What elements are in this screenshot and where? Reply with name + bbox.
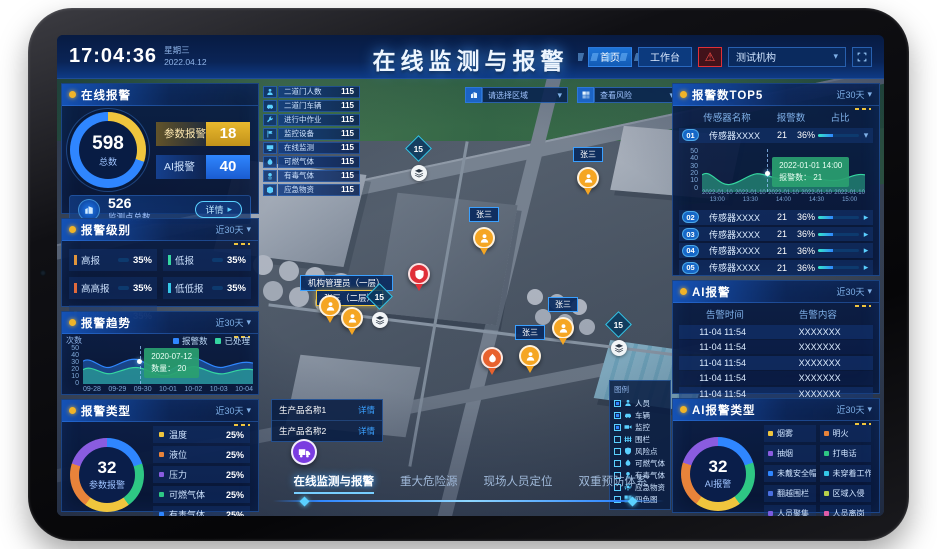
table-header: 告警时间 告警内容 — [673, 303, 879, 323]
page-title: 在线监测与报警 — [373, 42, 569, 76]
table-row[interactable]: 04 传感器XXXX 21 36% — [679, 243, 873, 258]
panel-ai-alarm: AI报警 近30天 告警时间 告警内容 11-04 11:54XXXXXXX — [672, 280, 880, 394]
layers-icon — [414, 168, 424, 178]
stat-online-monitoring[interactable]: 在线监测115 — [263, 141, 360, 154]
hover-point — [137, 359, 142, 364]
panel-title: AI报警类型 — [692, 402, 756, 418]
truck-icon — [298, 446, 311, 459]
range-select[interactable]: 近30天 — [215, 316, 251, 329]
dashboard-screen: 17:04:36 星期三 2022.04.12 在线监测与报警 首页 工作台 测… — [57, 35, 884, 516]
trend-chart: 次数 报警数 已处理 5040 3020 100 — [62, 334, 258, 394]
flame-icon — [487, 353, 498, 364]
tablet-camera — [40, 270, 46, 276]
level-item: 高报 35% — [69, 249, 157, 271]
level-item: 低低报 35% — [163, 277, 251, 299]
time: 17:04:36 — [69, 45, 157, 68]
panel-ai-alarm-type: AI报警类型 近30天 32 AI报警 — [672, 398, 880, 513]
donut-value: 32 — [98, 458, 117, 478]
quadrant-icon — [582, 91, 590, 99]
chevron-down-icon — [833, 51, 838, 62]
stat-flammable-gas[interactable]: 可燃气体115 — [263, 155, 360, 168]
legend-item: 压力 25% — [153, 466, 250, 483]
person-icon — [583, 173, 594, 184]
layers-icon — [375, 315, 385, 325]
expand-row-icon[interactable] — [859, 262, 873, 273]
person-icon — [479, 233, 490, 244]
panel-title: 报警数TOP5 — [692, 87, 763, 103]
panel-bullet-icon — [69, 91, 76, 98]
layer-toggle-flammable[interactable]: 可燃气体 — [614, 457, 666, 469]
title-decoration — [578, 53, 638, 61]
bottom-nav: 在线监测与报警 重大危险源 现场人员定位 双重预防体系 — [294, 473, 648, 494]
collapse-row-icon[interactable] — [859, 130, 873, 141]
flame-icon — [266, 158, 274, 166]
chart-tooltip: 2022-01-01 14:00 报警数： 21 — [772, 157, 849, 187]
legend-item: 抽烟 — [764, 445, 816, 462]
chevron-down-icon — [246, 405, 251, 416]
layer-toggle-vehicle[interactable]: 车辆 — [614, 409, 666, 421]
chevron-down-icon — [867, 286, 872, 297]
layers-icon — [614, 343, 624, 353]
range-select[interactable]: 近30天 — [215, 404, 251, 417]
legend-item: 打电话 — [820, 445, 872, 462]
car-icon — [624, 411, 632, 419]
chevron-down-icon — [867, 404, 872, 415]
alarm-warning-icon[interactable] — [698, 47, 722, 67]
person-icon — [558, 323, 569, 334]
rank-badge: 05 — [682, 262, 699, 274]
gauge-label: 总数 — [99, 155, 117, 168]
chevron-down-icon — [557, 90, 562, 101]
shield-icon — [624, 447, 632, 455]
main-area: 二道门人数115 二道门车辆115 进行中作业115 监控设备115 在线监测1… — [57, 79, 884, 516]
camera-icon — [624, 423, 632, 431]
ai-alarm-stat: AI报警 40 — [156, 155, 250, 179]
legend-item: 明火 — [820, 425, 872, 442]
layers-marker[interactable] — [372, 312, 388, 328]
legend-item: 液位 25% — [153, 446, 250, 463]
weekday: 星期三 — [164, 45, 207, 56]
legend-item: 区域入侵 — [820, 485, 872, 502]
table-row[interactable]: 05 传感器XXXX 21 36% — [679, 260, 873, 275]
legend-item: 有毒气体 25% — [153, 506, 250, 516]
stat-gate-people[interactable]: 二道门人数115 — [263, 85, 360, 98]
sensor-trend-chart: 5040 3020 100 2022-01 — [681, 146, 871, 205]
table-row[interactable]: 03 传感器XXXX 21 36% — [679, 227, 873, 242]
workbench-button[interactable]: 工作台 — [638, 47, 692, 67]
fire-alarm-pin[interactable] — [481, 347, 503, 369]
layers-marker[interactable] — [611, 340, 627, 356]
stat-monitor-devices[interactable]: 监控设备115 — [263, 127, 360, 140]
chart-tooltip: 2020-07-12 数量： 20 — [144, 348, 199, 378]
alarm-type-donut: 32 参数报警 — [70, 438, 144, 512]
panel-bullet-icon — [680, 406, 687, 413]
layer-toggle-person[interactable]: 人员 — [614, 397, 666, 409]
checkbox[interactable] — [614, 400, 621, 407]
table-row[interactable]: 11-04 11:54XXXXXXX — [679, 340, 873, 354]
panel-title: 报警趋势 — [81, 315, 131, 331]
panel-alarm-level: 报警级别 近30天 高报 35% — [61, 218, 259, 307]
panel-bullet-icon — [69, 226, 76, 233]
area-select[interactable]: 请选择区域 — [482, 87, 568, 103]
tablet-frame: 17:04:36 星期三 2022.04.12 在线监测与报警 首页 工作台 测… — [28, 8, 909, 541]
risk-select[interactable]: 查看风险 — [594, 87, 680, 103]
tab-personnel-location[interactable]: 现场人员定位 — [484, 473, 553, 494]
legend-item: 烟雾 — [764, 425, 816, 442]
legend-item: 人员离岗 — [820, 505, 872, 516]
panel-title: 在线报警 — [81, 87, 131, 103]
stat-active-jobs[interactable]: 进行中作业115 — [263, 113, 360, 126]
layer-toggle-risk[interactable]: 风险点 — [614, 445, 666, 457]
layers-marker[interactable] — [411, 165, 427, 181]
ai-alarm-value: 40 — [206, 155, 250, 179]
top-bar: 17:04:36 星期三 2022.04.12 在线监测与报警 首页 工作台 测… — [57, 35, 884, 79]
map-stat-list: 二道门人数115 二道门车辆115 进行中作业115 监控设备115 在线监测1… — [263, 85, 360, 196]
gauge-value: 598 — [92, 133, 124, 155]
table-row[interactable]: 01 传感器XXXX 21 36% — [679, 128, 873, 143]
chevron-down-icon — [246, 224, 251, 235]
layer-toggle-quadmap[interactable]: 四色图 — [614, 493, 666, 505]
area-select-group: 请选择区域 — [465, 87, 568, 103]
expand-row-icon[interactable] — [859, 212, 873, 223]
panel-title: 报警级别 — [81, 222, 131, 238]
range-select[interactable]: 近30天 — [836, 403, 872, 416]
car-icon — [266, 102, 274, 110]
panel-bullet-icon — [69, 407, 76, 414]
ai-type-donut: 32 AI报警 — [681, 437, 755, 511]
org-select[interactable]: 测试机构 — [728, 47, 846, 67]
table-row[interactable]: 02 传感器XXXX 21 36% — [679, 210, 873, 225]
x-axis-ticks: 2022-01-1013:00 2022-01-1013:30 2022-01-… — [702, 190, 865, 205]
product-row: 生产品名称2 详情 — [272, 420, 382, 441]
org-select-value: 测试机构 — [736, 49, 776, 64]
worker-pin[interactable]: 张三 — [519, 345, 541, 367]
legend-item: 温度 25% — [153, 426, 250, 443]
worker-pin[interactable]: 张三 — [577, 167, 599, 189]
shield-icon — [414, 269, 425, 280]
fullscreen-icon — [857, 52, 867, 62]
tab-online-monitoring[interactable]: 在线监测与报警 — [294, 473, 375, 494]
rank-badge: 04 — [682, 245, 699, 257]
donut-label: 参数报警 — [89, 478, 125, 491]
donut-value: 32 — [709, 457, 728, 477]
person-icon — [624, 399, 632, 407]
expand-row-icon[interactable] — [859, 245, 873, 256]
y-axis-ticks: 5040 3020 100 — [62, 345, 79, 384]
product-detail-link[interactable]: 详情 — [358, 425, 375, 437]
stat-gate-vehicles[interactable]: 二道门车辆115 — [263, 99, 360, 112]
level-item: 低报 35% — [163, 249, 251, 271]
right-column: 报警数TOP5 近30天 传感器名称 报警数 占比 01 传感器XXXX — [672, 83, 880, 513]
left-column: 在线报警 598 总数 参数报警 18 — [61, 83, 259, 512]
person-icon — [525, 351, 536, 362]
rank-badge: 02 — [682, 211, 699, 223]
stat-emergency-supplies[interactable]: 应急物资115 — [263, 183, 360, 196]
person-icon — [347, 313, 358, 324]
monitor-icon — [266, 144, 274, 152]
flame-icon — [624, 459, 632, 467]
total-alarm-gauge: 598 总数 — [70, 112, 146, 188]
worker-pin[interactable]: 张三 — [473, 227, 495, 249]
x-axis-ticks: 09-2809-29 09-3010-01 10-0210-03 10-04 — [83, 386, 253, 393]
range-select[interactable]: 近30天 — [215, 223, 251, 236]
checkbox[interactable] — [614, 436, 621, 443]
panel-bullet-icon — [69, 319, 76, 326]
table-row[interactable]: 11-04 11:54XXXXXXX — [679, 371, 873, 385]
panel-alarm-top5: 报警数TOP5 近30天 传感器名称 报警数 占比 01 传感器XXXX — [672, 83, 880, 276]
hover-guideline — [140, 346, 141, 384]
rank-badge: 01 — [682, 129, 699, 141]
tab-dual-prevention[interactable]: 双重预防体系 — [579, 473, 648, 494]
expand-row-icon[interactable] — [859, 229, 873, 240]
panel-online-alarm: 在线报警 598 总数 参数报警 18 — [61, 83, 259, 214]
product-row: 生产品名称1 详情 — [272, 400, 382, 420]
panel-alarm-trend: 报警趋势 近30天 次数 报警数 已处理 5040 — [61, 311, 259, 395]
alarm-type-legend: 温度 25% 液位 25% 压力 25% — [153, 426, 250, 516]
person-icon — [266, 88, 274, 96]
param-alarm-stat: 参数报警 18 — [156, 122, 250, 146]
tab-major-hazard[interactable]: 重大危险源 — [400, 473, 458, 494]
layer-toggle-camera[interactable]: 监控 — [614, 421, 666, 433]
panel-bullet-icon — [680, 91, 687, 98]
chevron-down-icon — [867, 89, 872, 100]
risk-select-group: 查看风险 — [577, 87, 680, 103]
legend-item: 人员聚集 — [764, 505, 816, 516]
worker-pin[interactable]: 张三 — [552, 317, 574, 339]
flag-icon — [266, 130, 274, 138]
panel-alarm-type: 报警类型 近30天 32 参数报警 — [61, 399, 259, 512]
product-detail-link[interactable]: 详情 — [358, 404, 375, 416]
risk-alarm-pin[interactable] — [408, 263, 430, 285]
legend-item: 可燃气体 25% — [153, 486, 250, 503]
legend-item: 未穿着工作服 — [820, 465, 872, 482]
rank-badge: 03 — [682, 228, 699, 240]
building-icon — [470, 91, 478, 99]
table-header: 传感器名称 报警数 占比 — [673, 106, 879, 126]
panel-bullet-icon — [680, 288, 687, 295]
truck-marker[interactable] — [291, 439, 317, 465]
panel-title: AI报警 — [692, 284, 731, 300]
y-axis-ticks: 5040 3020 100 — [681, 148, 698, 192]
table-row[interactable]: 11-04 11:54XXXXXXX — [679, 356, 873, 370]
checkbox[interactable] — [614, 424, 621, 431]
donut-label: AI报警 — [705, 477, 732, 490]
fence-icon — [624, 435, 632, 443]
layer-toggle-fence[interactable]: 围栏 — [614, 433, 666, 445]
hover-point — [765, 171, 770, 176]
level-item: 高高报 35% — [69, 277, 157, 299]
bottom-nav-line — [273, 500, 664, 502]
range-select[interactable]: 近30天 — [836, 88, 872, 101]
person-icon — [325, 301, 336, 312]
checkbox[interactable] — [614, 460, 621, 467]
product-list: 生产品名称1 详情 生产品名称2 详情 — [271, 399, 383, 442]
legend-title: 图例 — [614, 384, 666, 395]
worker-pin[interactable] — [319, 295, 341, 317]
detail-button[interactable]: 详情 — [195, 201, 242, 218]
poison-icon — [266, 172, 274, 180]
clock: 17:04:36 星期三 2022.04.12 — [69, 45, 207, 68]
param-alarm-value: 18 — [206, 122, 250, 146]
ai-type-legend: 烟雾 明火 抽烟 打电话 未戴安全帽 未穿着工作服 翻越围栏 区域入侵 人员聚集… — [764, 425, 871, 516]
panel-title: 报警类型 — [81, 403, 131, 419]
chevron-down-icon — [246, 317, 251, 328]
stat-toxic-gas[interactable]: 有毒气体115 — [263, 169, 360, 182]
fullscreen-button[interactable] — [852, 47, 872, 67]
wrench-icon — [266, 116, 274, 124]
range-select[interactable]: 近30天 — [836, 285, 872, 298]
table-row[interactable]: 11-04 11:54XXXXXXX — [679, 325, 873, 339]
monitor-points-value: 526 — [108, 196, 151, 211]
legend-item: 翻越围栏 — [764, 485, 816, 502]
checkbox[interactable] — [614, 448, 621, 455]
worker-pin[interactable] — [341, 307, 363, 329]
box-icon — [266, 186, 274, 194]
legend-item: 未戴安全帽 — [764, 465, 816, 482]
date: 2022.04.12 — [164, 57, 207, 68]
chevron-right-icon — [227, 204, 232, 215]
checkbox[interactable] — [614, 412, 621, 419]
